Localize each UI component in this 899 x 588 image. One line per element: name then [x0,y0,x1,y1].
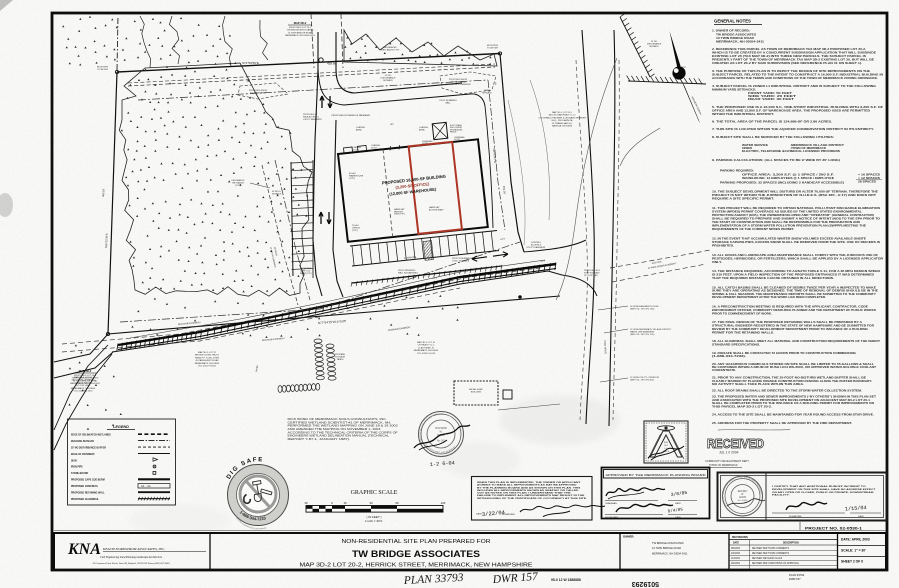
svg-text:WENDY P. TODD, ETEE: WENDY P. TODD, ETEE [195,357,220,359]
svg-text:OK REALTY LLC: OK REALTY LLC [418,344,435,347]
svg-text:24. ACCESS TO THE SITE SHALL B: 24. ACCESS TO THE SITE SHALL BE MAINTAIN… [712,414,874,417]
svg-text:IRON PIPE: IRON PIPE [71,467,83,469]
svg-text:STANDARD SPECIFICATIONS.: STANDARD SPECIFICATIONS. [712,343,760,346]
svg-text:SETBACK: SETBACK [482,92,492,95]
svg-text:THAT THE REQUIRED DISTANCE CAN: THAT THE REQUIRED DISTANCE CAN BE OBTAIN… [712,277,834,280]
svg-text:MERRIMACK, NH 03054-3411: MERRIMACK, NH 03054-3411 [285,34,316,37]
svg-text:6. THE TOTAL AREA OF THE PARCE: 6. THE TOTAL AREA OF THE PARCEL IS 124,6… [712,120,833,123]
svg-text:OUT AS NOTES ON THIS PLAN. I U: OUT AS NOTES ON THIS PLAN. I UNDERSTAND … [477,492,572,495]
svg-text:INCLUDES ALL IMPROVEMENTS SHOW: INCLUDES ALL IMPROVEMENTS SHOWN AS GRAPH… [477,489,579,492]
svg-text:UTILITY EASEMENT: UTILITY EASEMENT [303,118,323,121]
svg-text:BE CONTAINED WITHIN A DRUM OF: BE CONTAINED WITHIN A DRUM OF RUSH LICH … [712,366,877,369]
svg-text:VOL.6326 PG.243: VOL.6326 PG.243 [417,353,436,355]
svg-text:REAR YARD: 30 FEET: REAR YARD: 30 FEET [748,98,795,101]
svg-text:15: 15 [343,501,347,505]
svg-text:KNA: KNA [67,541,101,558]
svg-text:FENCE: FENCE [450,132,457,134]
svg-text:95-0 12 W 1888888: 95-0 12 W 1888888 [551,578,581,582]
svg-text:25. ADDRESS FOR THE PROPERTY S: 25. ADDRESS FOR THE PROPERTY SHALL BE AP… [712,422,852,425]
svg-text:APPROVED BY THE MERRIMACK: APPROVED BY THE MERRIMACK PLANNING BOARD [606,473,706,477]
svg-text:EDGE OF DELINEATED WETLANDS: EDGE OF DELINEATED WETLANDS [71,434,111,437]
svg-text:JUL 1 0 2004: JUL 1 0 2004 [719,451,739,455]
svg-text:REPORT Y-87-1, JANUARY 1987).: REPORT Y-87-1, JANUARY 1987). [288,438,351,441]
svg-text:PARKING PROPOSED: 32 SPACES (: PARKING PROPOSED: 32 SPACES (INCLUDING 2… [720,181,844,184]
svg-text:THIS PARCEL MAP 3D-2 LOT 20-2.: THIS PARCEL MAP 3D-2 LOT 20-2. [712,405,773,408]
svg-text:7. THIS SITE IS LOCATED WITHIN: 7. THIS SITE IS LOCATED WITHIN THE AQUIF… [712,128,874,131]
svg-text:STORAGE AREA: STORAGE AREA [250,91,266,94]
svg-text:WITHHOLDING OF THE CERTIFICATE: WITHHOLDING OF THE CERTIFICATE OF OCCUPA… [477,497,588,500]
svg-text:PROPOSED GUARDRAIL: PROPOSED GUARDRAIL [71,498,99,501]
svg-text:18" STOP BAR: 18" STOP BAR [584,274,598,277]
svg-text:08/18/03: 08/18/03 [731,548,741,550]
svg-text:SETBACK: SETBACK [272,192,282,195]
svg-text:(SEE VOL. 3073 PG. 205): (SEE VOL. 3073 PG. 205) [630,334,655,336]
svg-text:5019293: 5019293 [632,580,659,587]
svg-text:TOWN OF MERRIMACK: TOWN OF MERRIMACK [709,463,738,467]
svg-text:SIGNATURE: SIGNATURE [789,515,802,518]
svg-text:SETBACK: SETBACK [383,79,393,82]
svg-text:ACCESS RAMP: ACCESS RAMP [429,208,444,211]
svg-text:9. PARKING CALCULATIONS: (ALL: 9. PARKING CALCULATIONS: (ALL SPACES TO … [712,159,840,162]
svg-text:LEWIS: LEWIS [739,497,747,499]
svg-text:TANKS: TANKS [337,358,344,361]
svg-text:303.53': 303.53' [101,188,105,197]
svg-text:STORAGE CAPABILITIES, EXCESS S: STORAGE CAPABILITIES, EXCESS SNOW SHALL … [712,241,881,244]
svg-text:DESCRIPTION: DESCRIPTION [783,543,799,545]
svg-text:NO ACTIVITY SHALL TAKE PLACE W: NO ACTIVITY SHALL TAKE PLACE WITHIN THIS… [712,383,804,386]
svg-text:TW BRIDGE ASSOCIATES: TW BRIDGE ASSOCIATES [287,29,314,32]
svg-text:PROPOSED BITUMINOUS PAVEMENT: PROPOSED BITUMINOUS PAVEMENT [331,114,371,117]
svg-text:SIGNATURE:: SIGNATURE: [502,513,516,516]
svg-text:REQUIREMENTS OF THE CURRENT NP: REQUIREMENTS OF THE CURRENT NPDES PERMIT… [712,228,794,231]
svg-text:DATE: DATE [675,502,681,505]
svg-text:GRAPHIC SCALE: GRAPHIC SCALE [351,490,398,496]
svg-text:11/03/03: 11/03/03 [731,558,740,560]
svg-text:REQUIRE A SITE SPECIFIC PERMIT: REQUIRE A SITE SPECIFIC PERMIT. [712,198,774,201]
svg-text:S71°56'59"E: S71°56'59"E [242,61,259,65]
svg-text:(SEE VOL. 2974 PG.365): (SEE VOL. 2974 PG.365) [630,380,654,382]
svg-text:SCALE: 1” = 30': SCALE: 1” = 30' [841,549,866,553]
svg-text:JEFFREY: JEFFREY [737,491,748,493]
svg-text:PESTICIDES, HERBICIDES, OR FER: PESTICIDES, HERBICIDES, OR FERTILIZERS, … [712,257,883,260]
svg-text:N.H.: N.H. [664,442,669,444]
svg-text:ON ANY OPEN OR CLOSED, PUBLIC: ON ANY OPEN OR CLOSED, PUBLIC OR PRIVATE… [772,491,874,494]
svg-text:254.50': 254.50' [502,186,507,195]
svg-text:MERRIMACK, NH 03054-3411: MERRIMACK, NH 03054-3411 [716,40,765,43]
svg-text:WALL W/GUARDRAIL: WALL W/GUARDRAIL [398,271,419,274]
svg-text:STONE BOUND: STONE BOUND [71,473,88,475]
svg-text:WALL: WALL [445,101,451,104]
svg-text:C/O GERALD PRUNIER & LEONARD P: C/O GERALD PRUNIER & LEONARD PRUNIER [538,116,586,119]
svg-text:PROPOSED RETAINING WALL: PROPOSED RETAINING WALL [71,492,105,495]
svg-text:DOOR: DOOR [422,143,428,145]
svg-text:PROJECT NO. 02-0530-1: PROJECT NO. 02-0530-1 [805,527,862,531]
svg-text:CHAIRMAN: CHAIRMAN [605,502,617,505]
svg-text:CONCENTRATE.: CONCENTRATE. [712,369,736,372]
svg-text:MAP 3D-2 LOT 37: MAP 3D-2 LOT 37 [198,351,217,354]
svg-text:ELECTRIC, TELEPHONE &CATV.: ELECTRIC, TELEPHONE &CATV. [742,150,794,153]
svg-text:45 PARKHURST ROAD: 45 PARKHURST ROAD [195,359,219,362]
svg-text:FACILITY.: FACILITY. [772,494,790,497]
svg-text:BUILDING SETBACK: BUILDING SETBACK [71,440,94,443]
svg-text:30: 30 [304,501,308,505]
svg-text:LEGEND: LEGEND [113,425,129,429]
svg-text:(TYP.): (TYP.) [349,178,355,180]
svg-text:REVISED WETLAND FLAGS: REVISED WETLAND FLAGS [752,557,783,560]
svg-text:SIGN (TYP): SIGN (TYP) [394,214,405,216]
svg-text:BUILDING: BUILDING [471,392,482,394]
svg-text:WHEN THIS PLAN IS IMPLEMENTED,: WHEN THIS PLAN IS IMPLEMENTED, THE OWNER… [477,481,581,484]
svg-text:ACCORDANCE WITH THE TERMS AND: ACCORDANCE WITH THE TERMS AND CONDITIONS… [712,77,878,80]
svg-text:PROPOSED LOT 20-1: PROPOSED LOT 20-1 [289,27,312,29]
svg-text:10 Commerce Park North, Suite: 10 Commerce Park North, Suite 3B, Bedfor… [92,562,169,565]
svg-text:REVISED PER TOWN COMMENTS: REVISED PER TOWN COMMENTS [752,548,790,550]
svg-text:No. 10402: No. 10402 [738,500,748,502]
svg-text:SECRETARY: SECRETARY [605,516,619,519]
svg-text:REVISED PER CONDITIONS OF APPR: REVISED PER CONDITIONS OF APPROVAL [752,562,800,565]
svg-text:DATE: DATE [858,515,864,518]
svg-text:DATE: DATE [675,516,681,519]
svg-text:02/18/04: 02/18/04 [731,563,741,565]
svg-text:METAL SHED: METAL SHED [469,388,483,391]
svg-text:MAP 3D-2: MAP 3D-2 [294,21,307,25]
svg-text:REVISIONS: REVISIONS [732,535,748,539]
svg-text:DOCK: DOCK [371,147,377,149]
svg-text:10 TWIN BRIDGE ROAD: 10 TWIN BRIDGE ROAD [288,31,313,34]
svg-text:DWR 157: DWR 157 [789,577,801,581]
svg-text:UTILITY EASEMENT: UTILITY EASEMENT [527,246,547,249]
svg-text:MAP 3D-1 LOT 10: MAP 3D-1 LOT 10 [417,341,436,344]
svg-text:MERRIMACK, NH 03054: MERRIMACK, NH 03054 [195,362,220,365]
svg-text:CREATED AS LOT 20-2 BY SAID SU: CREATED AS LOT 20-2 BY SAID SUBDIVISION … [712,62,862,65]
svg-text:SHEET 2 OF 9: SHEET 2 OF 9 [841,560,863,564]
svg-text:TW BRIDGE ASSOCIATES: TW BRIDGE ASSOCIATES [352,549,481,560]
svg-text:FAILURE TO IMPLEMENT ALL IMPRO: FAILURE TO IMPLEMENT ALL IMPROVEMENTS MA… [477,494,585,497]
svg-text:BROWN LIVING TRUST: BROWN LIVING TRUST [195,355,220,357]
svg-text:22. ALL ROOF DRAINS SHALL BE D: 22. ALL ROOF DRAINS SHALL BE DIRECTED TO… [712,390,862,393]
svg-text:(SEE VOL. 2974 PG. 365): (SEE VOL. 2974 PG. 365) [630,309,655,311]
svg-text:= 12 SPACES: = 12 SPACES [858,177,881,180]
svg-text:DEVELOPMENT ON THIS SITE SHALL: DEVELOPMENT ON THIS SITE SHALL HAVE NO A… [772,488,876,491]
svg-text:COMMUNITY DEVELOPMENT DEPT.: COMMUNITY DEVELOPMENT DEPT. [705,459,750,463]
svg-text:BERM (TYP): BERM (TYP) [300,273,312,275]
svg-text:I CERTIFY THAT ANY ADDITIONAL: I CERTIFY THAT ANY ADDITIONAL RUNOFF INC… [772,485,866,488]
svg-text:PROHIBITED.: PROHIBITED. [712,245,734,248]
svg-text:CONC. SIDEWALK: CONC. SIDEWALK [452,259,470,262]
svg-text:PLAN 33792: PLAN 33792 [789,573,805,577]
svg-text:AREA: AREA [419,128,425,131]
svg-text:N20°22'36"E: N20°22'36"E [104,233,109,248]
svg-text:1 inch = 30 ft.: 1 inch = 30 ft. [365,519,383,523]
svg-text:PRIOR TO COMMENCEMENT OF WORK.: PRIOR TO COMMENCEMENT OF WORK. [712,312,772,315]
svg-text:VOL.5115 PG.1310: VOL.5115 PG.1310 [74,391,94,393]
svg-text:RECEIVED: RECEIVED [707,436,764,451]
svg-text:OWNER:: OWNER: [623,535,634,539]
svg-text:1. OWNER OF RECORD:: 1. OWNER OF RECORD: [712,29,750,32]
svg-text:MERRIMACK, NH 03054-3411: MERRIMACK, NH 03054-3411 [652,551,688,555]
svg-text:BY THE PLANNING BOARD AND AS S: BY THE PLANNING BOARD AND AS SHOWN ON TH… [477,486,581,489]
svg-text:MERRIMACK, NH 03054: MERRIMACK, NH 03054 [414,349,439,352]
svg-text:(TYP.): (TYP.) [352,230,358,232]
svg-text:AGREES TO MAKE ALL IMPROVEMEN: AGREES TO MAKE ALL IMPROVEMENTS AS MAY B… [477,484,577,487]
svg-text:DEVELOPMENT DEPARTMENT AFTER T: DEVELOPMENT DEPARTMENT AFTER THE WORK HA… [712,296,826,299]
svg-text:DATE: APRIL 2003: DATE: APRIL 2003 [841,538,870,542]
svg-text:8. SUBJECT SITE SHALL BE SERVI: 8. SUBJECT SITE SHALL BE SERVICED BY THE… [712,136,834,139]
svg-text:(TYP): (TYP) [235,185,241,187]
svg-text:(1-888-344-7233).: (1-888-344-7233). [712,355,747,358]
svg-text:WAREHOUSE: WAREHOUSE [349,175,364,178]
svg-text:WETLANDS (TYP): WETLANDS (TYP) [381,49,400,52]
svg-text:TW BRIDGE ASSOCIATES: TW BRIDGE ASSOCIATES [652,541,684,545]
svg-text:120: 120 [441,501,446,505]
svg-text:MAP 3D-2 LOT 20-2, HERRICK: MAP 3D-2 LOT 20-2, HERRICK STREET, MERRI… [300,563,534,569]
svg-text:11 AUTUMN LN.: 11 AUTUMN LN. [418,346,435,349]
svg-text:PROPOSED CAPE COD BERM: PROPOSED CAPE COD BERM [71,479,105,482]
svg-text:-LOCAL LICENSED PROVIDERS: -LOCAL LICENSED PROVIDERS [790,150,841,153]
svg-text:WITHIN THE INDUSTRIAL DISTRICT: WITHIN THE INDUSTRIAL DISTRICT. [712,113,774,116]
svg-text:W.: W. [741,494,744,496]
svg-text:25' NO DISTURBANCE BUFFER: 25' NO DISTURBANCE BUFFER [71,446,106,449]
svg-text:PARKING REQUIRED:: PARKING REQUIRED: [720,170,754,173]
svg-text:30: 30 [369,501,373,505]
svg-text:AREA: AREA [356,128,362,131]
svg-text:PROPOSED CONCRETE: PROPOSED CONCRETE [71,486,98,488]
svg-text:JACOB STAR REALTY LLC: JACOB STAR REALTY LLC [548,114,576,117]
svg-text:NASHUA, NH 03063: NASHUA, NH 03063 [552,125,573,128]
svg-text:GENERAL NOTES: GENERAL NOTES [714,19,751,24]
svg-text:PERMIT FOR THE RETAINING WALLS: PERMIT FOR THE RETAINING WALLS. [712,331,774,334]
svg-text:ESQ., PROLAWN PA: ESQ., PROLAWN PA [552,119,573,122]
svg-text:60: 60 [395,501,399,505]
svg-text:20 TRAFALGAR SQ.: 20 TRAFALGAR SQ. [552,122,573,125]
svg-text:TO BE SET: TO BE SET [487,48,499,50]
svg-text:DATE: DATE [733,542,740,545]
svg-text:DOOR: DOOR [454,139,460,141]
svg-text:VOL.2001 PG.600: VOL.2001 PG.600 [198,366,217,368]
svg-text:WAREHOUSE: 12 EMPLOYEES @ 1: WAREHOUSE: 12 EMPLOYEES @ 1 SPACE / EMPL… [742,177,835,180]
svg-text:CA.. ..CA: CA.. ..CA [141,485,151,488]
svg-text:DELINEATED: DELINEATED [383,46,397,49]
svg-text:(TYP)SLOPE 3:1 MINIMUM: (TYP)SLOPE 3:1 MINIMUM [446,84,471,86]
svg-text:MAP 3D-2 LOT 36: MAP 3D-2 LOT 36 [74,376,93,379]
svg-text:REVISED PER TOWN COMMENTS: REVISED PER TOWN COMMENTS [752,553,790,555]
svg-text:TO BE SET: TO BE SET [97,69,109,71]
svg-text:MAP 3D-1 LOT 20-1: MAP 3D-1 LOT 20-1 [552,111,573,114]
svg-text:10/02/03: 10/02/03 [731,553,741,555]
svg-text:28 SPACES: 28 SPACES [858,180,877,183]
svg-text:EDGE OF PAVEMENT: EDGE OF PAVEMENT [71,453,95,456]
svg-text:NON-RESIDENTIAL SITE PLAN P: NON-RESIDENTIAL SITE PLAN PREPARED FOR [342,539,491,545]
svg-text:ONLY.: ONLY. [712,261,722,264]
svg-text:SIGN: SIGN [71,460,77,462]
svg-text:SETBACK: SETBACK [649,45,659,48]
svg-text:10 TWIN BRIDGE ROAD: 10 TWIN BRIDGE ROAD [652,546,681,550]
svg-text:Civil Engineering Land Plan: Civil Engineering Land Planning Landscap… [100,556,163,559]
